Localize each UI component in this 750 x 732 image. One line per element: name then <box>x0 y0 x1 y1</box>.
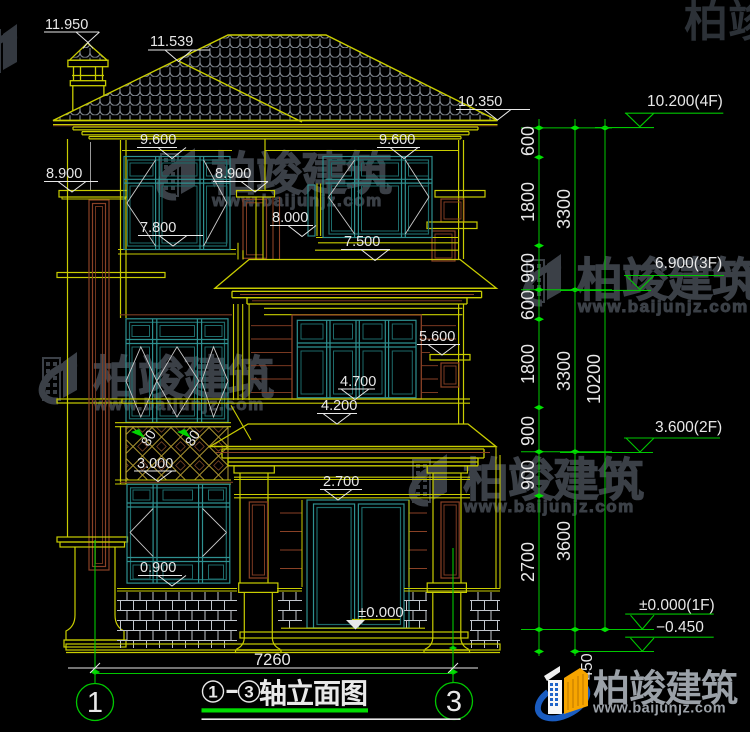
svg-text:9.600: 9.600 <box>140 132 176 148</box>
svg-text:1: 1 <box>87 687 103 719</box>
svg-text:600: 600 <box>518 290 538 320</box>
svg-text:600: 600 <box>518 126 538 156</box>
svg-text:7.500: 7.500 <box>344 234 380 250</box>
svg-text:3600: 3600 <box>554 521 574 561</box>
svg-text:8.900: 8.900 <box>215 166 251 182</box>
svg-text:1800: 1800 <box>518 182 538 222</box>
svg-text:11.950: 11.950 <box>45 17 88 33</box>
svg-text:7260: 7260 <box>254 651 291 669</box>
svg-text:0.900: 0.900 <box>140 560 176 576</box>
svg-text:±0.000(1F): ±0.000(1F) <box>639 597 715 614</box>
svg-text:4.200: 4.200 <box>321 398 357 414</box>
svg-text:www.baijunjz.com: www.baijunjz.com <box>592 701 726 717</box>
svg-text:3300: 3300 <box>554 351 574 391</box>
svg-text:10.200(4F): 10.200(4F) <box>647 93 723 110</box>
svg-text:8.000: 8.000 <box>272 210 308 226</box>
svg-text:900: 900 <box>518 460 538 490</box>
svg-text:900: 900 <box>518 416 538 446</box>
svg-text:3.000: 3.000 <box>137 456 173 472</box>
svg-text:2700: 2700 <box>518 542 538 582</box>
svg-text:−0.450: −0.450 <box>656 619 704 636</box>
svg-text:10200: 10200 <box>584 354 604 404</box>
svg-text:10.350: 10.350 <box>458 94 502 110</box>
svg-text:1: 1 <box>208 683 217 702</box>
svg-text:7.800: 7.800 <box>140 220 176 236</box>
svg-text:1800: 1800 <box>518 344 538 384</box>
svg-text:3300: 3300 <box>554 189 574 229</box>
svg-text:6.900(3F): 6.900(3F) <box>655 255 722 272</box>
svg-text:±0.000: ±0.000 <box>358 604 404 621</box>
svg-text:4.700: 4.700 <box>340 374 376 390</box>
svg-text:5.600: 5.600 <box>419 329 455 345</box>
svg-text:柏竣: 柏竣 <box>684 0 750 46</box>
svg-text:8.900: 8.900 <box>46 166 82 182</box>
svg-text:3: 3 <box>446 686 462 718</box>
svg-text:3: 3 <box>244 683 253 702</box>
svg-text:2.700: 2.700 <box>323 474 359 490</box>
svg-text:900: 900 <box>518 253 538 283</box>
svg-text:轴立面图: 轴立面图 <box>259 677 367 709</box>
svg-text:3.600(2F): 3.600(2F) <box>655 419 722 436</box>
svg-text:9.600: 9.600 <box>379 132 415 148</box>
svg-text:11.539: 11.539 <box>150 34 193 50</box>
